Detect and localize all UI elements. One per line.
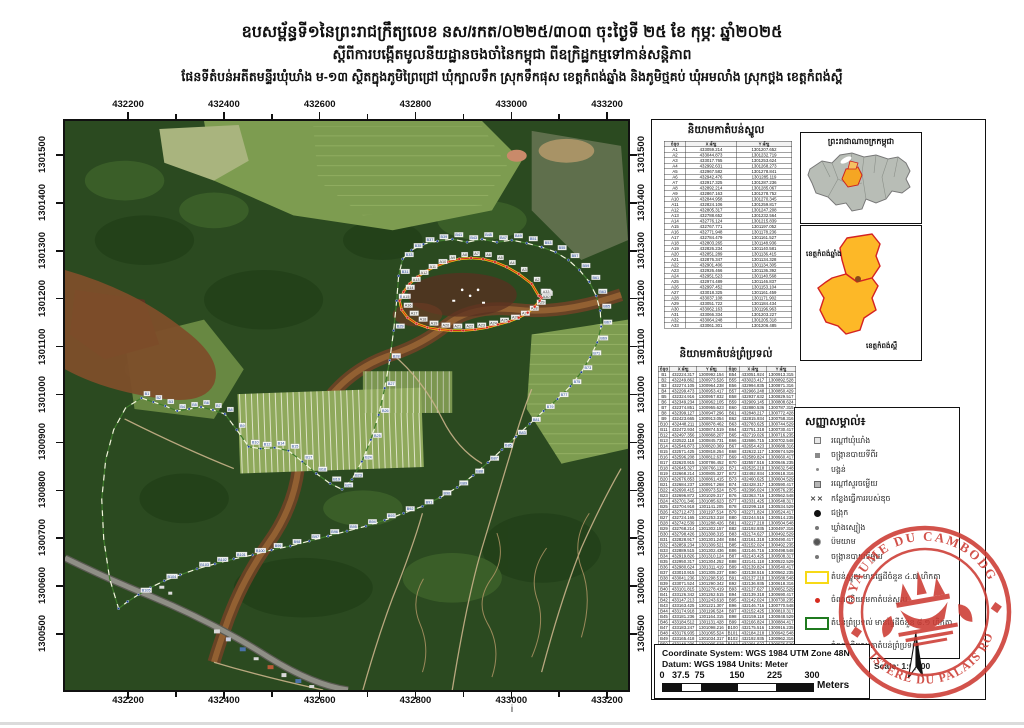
scalebar-tick-label: 225 <box>763 670 787 680</box>
table-cell: 1300973.524 <box>697 487 726 493</box>
core-point <box>538 299 541 302</box>
tick-mark <box>630 202 637 204</box>
point-label: B41 <box>455 233 462 237</box>
table-row: A33433061.3011301206.485 <box>664 323 792 329</box>
legend-item-label: ជង្រុក <box>831 507 848 519</box>
datum-units-text: Datum: WGS 1984 Units: Meter <box>662 659 788 669</box>
table-cell: B22 <box>658 487 669 493</box>
tick-mark <box>463 114 465 119</box>
table-cell: 432166.824 <box>739 619 766 625</box>
table-cell: 1300730.235 <box>766 597 795 603</box>
tick-mark <box>319 112 321 119</box>
table-cell: 432152.425 <box>739 608 766 614</box>
boundary-point <box>596 341 598 343</box>
boundary-point <box>214 563 216 565</box>
core-coordinates-table: ចំនុចX អ័ក្សY អ័ក្ស A1433059.2141301207.… <box>664 141 792 329</box>
table-cell: 432152.024 <box>739 542 766 548</box>
table-cell: 1300861.415 <box>697 476 726 482</box>
table-cell: 432448.211 <box>670 421 697 427</box>
point-label: B100 <box>256 549 265 553</box>
boundary-point <box>164 405 166 407</box>
core-point <box>517 273 520 276</box>
table-cell: 433126.342 <box>670 592 697 598</box>
core-point <box>426 326 429 329</box>
legend-item: ឃ្លាំងស្បៀង <box>803 521 865 534</box>
boundary-point <box>554 251 556 253</box>
table-cell: 433174.918 <box>670 608 697 614</box>
table-cell: 1301298.516 <box>697 575 726 581</box>
bare-soil-topright <box>539 139 595 163</box>
table-cell: 432686.715 <box>739 438 766 444</box>
tick-mark <box>558 114 560 119</box>
table-cell: 433165.418 <box>670 636 697 642</box>
table-cell: 1300973.526 <box>697 377 726 383</box>
boundary-point <box>481 238 483 240</box>
table-cell: 1301308.315 <box>697 531 726 537</box>
core-point <box>462 329 465 332</box>
table-cell: 1300818.254 <box>697 449 726 455</box>
table-cell: 1301311.419 <box>697 564 726 570</box>
core-point <box>438 328 441 331</box>
point-label: A17 <box>411 312 418 316</box>
table-cell: 1300913.054 <box>697 416 726 422</box>
table-cell: 432645.327 <box>670 465 697 471</box>
point-label: A11 <box>430 265 436 269</box>
table-cell: 1300770.548 <box>766 603 795 609</box>
point-label: B2 <box>157 396 162 400</box>
boundary-point <box>346 530 348 532</box>
table-cell: B12 <box>658 432 669 438</box>
point-label: A24 <box>490 322 497 326</box>
table-cell: 1301197.514 <box>697 509 726 515</box>
boundary-point <box>248 446 250 448</box>
point-label: A22 <box>466 325 473 329</box>
table-cell: 1301302.436 <box>697 548 726 554</box>
point-label: B83 <box>519 431 526 435</box>
legend-item-label: រណ្តៅសួរចម្លើយ <box>831 478 878 490</box>
core-point <box>470 257 473 260</box>
point-label: B75 <box>574 380 581 384</box>
table-cell: 1300588.548 <box>766 575 795 581</box>
table-cell: 1300716.235 <box>766 432 795 438</box>
table-cell: B34 <box>658 553 669 559</box>
tick-mark <box>175 692 177 697</box>
boundary-point <box>595 295 597 297</box>
legend-item-label: ចង្ក្រានបាយទីមួយ <box>831 551 883 563</box>
table-cell: 1301301.248 <box>697 537 726 543</box>
table-cell: 432909.145 <box>739 399 766 405</box>
table-cell: 432596.208 <box>670 454 697 460</box>
legend-item-label: ចំណុចនិយាមកាតំបន់ស្នូល <box>831 594 907 606</box>
scalebar <box>662 683 814 692</box>
core-point <box>494 261 497 264</box>
table-cell: B36 <box>658 564 669 570</box>
table-cell: 432137.627 <box>739 586 766 592</box>
table-cell: 1301029.317 <box>697 493 726 499</box>
table-cell: B33 <box>658 548 669 554</box>
boundary-point <box>487 461 489 463</box>
table-cell: B20 <box>658 476 669 482</box>
boundary-point <box>341 488 343 490</box>
table-cell: 432192.935 <box>739 526 766 532</box>
boundary-point <box>117 607 119 609</box>
boundary-point <box>140 397 142 399</box>
table-cell: 432684.237 <box>670 482 697 488</box>
legend-item-label: ចង្ក្រានបាយទីពីរ <box>831 449 878 461</box>
table-cell: 432324.916 <box>670 394 697 400</box>
table-cell: 1300492.529 <box>766 531 795 537</box>
kampong-speu-shape <box>818 274 878 334</box>
legend-item-label: រណ្តៅឃុំឃាំង <box>831 435 870 447</box>
legend-item-label: ឃ្លាំងស្បៀង <box>831 522 865 534</box>
table-cell: B18 <box>658 465 669 471</box>
table-cell: 432937.632 <box>739 394 766 400</box>
table-cell: B25 <box>658 504 669 510</box>
table-cell: 433051.924 <box>739 372 766 378</box>
dot-large-icon <box>814 510 821 517</box>
table-cell: 432244.516 <box>739 515 766 521</box>
table-cell: 1300992.154 <box>697 372 726 378</box>
table-cell: 433041.236 <box>670 575 697 581</box>
table-cell: 432798.426 <box>670 531 697 537</box>
tick-mark <box>630 250 637 252</box>
point-label: B9 <box>240 424 245 428</box>
boundary-point <box>236 429 238 431</box>
table-cell: B39 <box>658 581 669 587</box>
point-label: B87 <box>491 457 498 461</box>
table-cell: 1300576.235 <box>766 487 795 493</box>
boundary-point <box>567 259 569 261</box>
point-label: B77 <box>561 393 568 397</box>
x-tick-label-top: 432600 <box>290 99 350 110</box>
core-point <box>517 316 520 319</box>
table-cell: 432696.872 <box>670 493 697 499</box>
locator-cambodia-box: ព្រះរាជាណាចក្រកម្ពុជា <box>800 132 922 224</box>
boundary-point <box>436 240 438 242</box>
point-label: B92 <box>407 507 414 511</box>
tick-mark <box>511 112 513 119</box>
point-label: B15 <box>292 445 299 449</box>
table-cell: 432175.516 <box>739 625 766 631</box>
table-cell: B40 <box>658 586 669 592</box>
table-cell: 1300878.462 <box>697 421 726 427</box>
table-cell: 432472.934 <box>670 427 697 433</box>
dot-small-icon <box>816 468 819 471</box>
boundary-point <box>179 574 181 576</box>
table-cell: 1300562.548 <box>766 493 795 499</box>
table-cell: 433183.247 <box>670 625 697 631</box>
table-cell: 1300829.517 <box>766 394 795 400</box>
table-cell: 1301310.124 <box>697 553 726 559</box>
tick-mark <box>630 394 637 396</box>
tick-mark <box>630 537 637 539</box>
legend-item-label: ប៉មយាម <box>831 536 856 548</box>
boundary-point <box>370 439 372 441</box>
tick-mark <box>56 585 63 587</box>
table-cell: 1300562.235 <box>766 570 795 576</box>
point-label: B14 <box>278 442 285 446</box>
core-point <box>400 308 403 311</box>
boundary-point <box>365 525 367 527</box>
scalebar-segment <box>682 684 701 691</box>
boundary-point <box>212 409 214 411</box>
point-label: B81 <box>533 418 540 422</box>
table-cell: 433184.512 <box>670 619 697 625</box>
point-label: B91 <box>426 500 433 504</box>
tick-mark <box>56 298 63 300</box>
boundary-point <box>515 436 517 438</box>
table-cell: 432363.716 <box>739 493 766 499</box>
table-cell: 433176.935 <box>670 630 697 636</box>
point-label: B63 <box>599 290 606 294</box>
table-cell: 432690.415 <box>670 487 697 493</box>
provinces-locator-map: ខេត្តកំពង់ឆ្នាំង ខេត្តកំពង់ស្ពឺ <box>801 226 921 360</box>
point-label: B7 <box>216 404 221 408</box>
boundary-point <box>472 474 474 476</box>
x-tick-label-top: 432200 <box>98 99 158 110</box>
legend-item: រណ្តៅសួរចម្លើយ <box>803 478 878 491</box>
core-point <box>415 322 418 325</box>
x-tick-label-top: 432400 <box>194 99 254 110</box>
tick-mark <box>367 692 369 697</box>
table-cell: B102 <box>726 636 739 642</box>
table-cell: 1300874.519 <box>697 427 726 433</box>
boundary-point <box>600 325 602 327</box>
table-cell: 432497.356 <box>670 432 697 438</box>
boundary-point <box>327 535 329 537</box>
table-cell: 1300646.235 <box>766 460 795 466</box>
table-cell: B49 <box>658 636 669 642</box>
point-label: B97 <box>312 535 319 539</box>
table-cell: B44 <box>658 608 669 614</box>
table-cell: 1300884.417 <box>766 619 795 625</box>
table-cell: 1300964.238 <box>697 383 726 389</box>
table-cell: 1300916.235 <box>766 625 795 631</box>
core-point <box>497 323 500 326</box>
table-cell: B43 <box>658 603 669 609</box>
x-tick-label-top: 433200 <box>577 99 637 110</box>
table-cell: 1301305.237 <box>697 570 726 576</box>
point-label: B26 <box>382 409 389 413</box>
table-cell: 1300957.832 <box>697 394 726 400</box>
table-cell: 432146.716 <box>739 603 766 609</box>
table-cell: B37 <box>658 570 669 576</box>
tick-mark <box>56 490 63 492</box>
point-label: A12 <box>421 271 428 275</box>
table-cell: B45 <box>658 614 669 620</box>
point-label: B33 <box>406 253 413 257</box>
point-label: A23 <box>478 324 485 328</box>
table-cell: B46 <box>658 619 669 625</box>
table-cell: 1300618.316 <box>766 471 795 477</box>
table-cell: 432950.317 <box>670 559 697 565</box>
boundary-point <box>421 505 423 507</box>
table-cell: 1301278.419 <box>697 586 726 592</box>
boundary-point <box>580 371 582 373</box>
x-mark-icon: ✕✕ <box>810 495 824 503</box>
table-cell: 432423.665 <box>670 416 697 422</box>
legend-box: សញ្ញាសម្គាល់៖ រណ្តៅឃុំឃាំងចង្ក្រានបាយទីព… <box>794 407 960 659</box>
table-cell: 432768.214 <box>670 526 697 532</box>
table-cell: 1301196.524 <box>697 608 726 614</box>
point-label: B43 <box>470 236 477 240</box>
scanned-map-sheet: ឧបសម្ព័ន្ធទី១នៃព្រះរាជក្រឹត្យលេខ នស/រកត/… <box>0 0 1024 728</box>
core-point <box>450 329 453 332</box>
point-label: A33 <box>543 290 550 294</box>
legend-item: ប៉មយាម <box>803 536 856 549</box>
boundary-point <box>451 238 453 240</box>
table-cell: 1300766.118 <box>697 465 726 471</box>
table-cell: 432719.026 <box>739 432 766 438</box>
point-label: A7 <box>474 252 479 256</box>
boundary-point <box>270 549 272 551</box>
table-cell: 433163.425 <box>670 603 697 609</box>
boundary-point <box>289 545 291 547</box>
table-cell: 432546.873 <box>670 443 697 449</box>
legend-item-label: បង្គន់ <box>831 464 846 476</box>
boundary-point <box>401 258 403 260</box>
core-point <box>530 282 533 285</box>
table-cell: 432137.218 <box>739 575 766 581</box>
table-cell: 432192.935 <box>739 636 766 642</box>
table-cell: 1300786.452 <box>697 460 726 466</box>
table-cell: 433181.236 <box>670 614 697 620</box>
table-cell: 1301309.521 <box>697 542 726 548</box>
table-cell: 432522.118 <box>670 438 697 444</box>
table-cell: 432525.218 <box>739 465 766 471</box>
point-label: B5 <box>192 403 197 407</box>
point-label: B24 <box>365 456 372 460</box>
table-cell: 1300953.417 <box>697 388 726 394</box>
table-cell: 1300744.529 <box>766 421 795 427</box>
boundary-point <box>259 448 261 450</box>
point-label: B69 <box>600 336 607 340</box>
map-title-line3: ផែនទីតំបន់អតីតមន្ទីរឃុំឃាំង ម-១៣ ស្ថិតក្… <box>40 68 984 86</box>
table-cell: 432138.516 <box>739 570 766 576</box>
point-label: A19 <box>431 322 438 326</box>
table-cell: 1301304.252 <box>697 559 726 565</box>
table-cell: 1300808.624 <box>766 399 795 405</box>
table-cell: 1300812.637 <box>697 454 726 460</box>
table-cell: B21 <box>658 482 669 488</box>
tick-mark <box>223 112 225 119</box>
tick-mark <box>56 394 63 396</box>
legend-item: ជង្រុក <box>803 507 848 520</box>
boundary-point <box>251 554 253 556</box>
point-label: A16 <box>405 304 412 308</box>
tick-mark <box>606 112 608 119</box>
table-cell: 1300758.316 <box>766 416 795 422</box>
table-cell: 1300962.105 <box>697 399 726 405</box>
point-label: B47 <box>500 236 507 240</box>
kampong-speu-label: ខេត្តកំពង់ស្ពឺ <box>866 341 897 350</box>
point-label: B102 <box>218 558 227 562</box>
table-cell: 432859.234 <box>670 542 697 548</box>
table-cell: 432712.473 <box>670 509 697 515</box>
boundary-point <box>301 460 303 462</box>
point-label: A2 <box>535 278 540 282</box>
table-cell: 433101.815 <box>670 586 697 592</box>
boundary-point <box>511 239 513 241</box>
table-cell: B38 <box>658 575 669 581</box>
table-cell: 432224.317 <box>670 372 697 378</box>
rect-green-icon <box>805 617 829 630</box>
table-cell: 432701.346 <box>670 498 697 504</box>
boundary-point <box>126 600 128 602</box>
table-cell: 1300524.417 <box>766 509 795 515</box>
y-tick-label-left: 1300500 <box>36 605 49 663</box>
table-cell: B16 <box>658 454 669 460</box>
table-cell: 1300787.315 <box>766 405 795 411</box>
table-cell: 432815.934 <box>739 416 766 422</box>
boundary-point <box>329 482 331 484</box>
table-cell: B28 <box>658 520 669 526</box>
boundary-point <box>456 486 458 488</box>
table-cell: 432589.824 <box>739 454 766 460</box>
core-point <box>505 266 508 269</box>
point-label: B10 <box>252 441 259 445</box>
boundary-point <box>501 448 503 450</box>
table-cell: 432174.627 <box>739 531 766 537</box>
table-cell: B30 <box>658 531 669 537</box>
table-cell: 432142.024 <box>739 597 766 603</box>
legend-item: តំបន់ព្រំប្រទល់ មានផ្ទៃដីចំនួន ៨.១ ហិកតា <box>803 614 952 632</box>
core-point <box>474 328 477 331</box>
point-label: B31 <box>402 270 409 274</box>
table-cell: 1301221.307 <box>697 603 726 609</box>
table-cell: B23 <box>658 493 669 499</box>
core-point <box>526 311 529 314</box>
tick-mark <box>558 692 560 697</box>
table-cell: 432146.716 <box>739 548 766 554</box>
table-cell: B29 <box>658 526 669 532</box>
boundary-point <box>233 558 235 560</box>
boundary-point <box>224 413 226 415</box>
core-point <box>482 258 485 261</box>
point-label: B104 <box>167 575 176 579</box>
table-cell: 1300730.417 <box>766 427 795 433</box>
table-cell: 432136.935 <box>739 581 766 587</box>
point-label: B61 <box>592 276 599 280</box>
scalebar-tick-label: 150 <box>725 670 749 680</box>
table-cell: B13 <box>658 438 669 444</box>
table-cell: B24 <box>658 498 669 504</box>
table-cell: 432704.918 <box>670 504 697 510</box>
scalebar-segment <box>663 684 682 691</box>
table-cell: B41 <box>658 592 669 598</box>
table-cell: 432889.515 <box>670 548 697 554</box>
table-cell: 1300652.529 <box>766 586 795 592</box>
tick-mark <box>56 202 63 204</box>
point-label: B105 <box>142 589 151 593</box>
table-cell: B31 <box>658 537 669 543</box>
table-cell: 432299.118 <box>739 504 766 510</box>
dot-ring-icon <box>813 538 821 546</box>
table-cell: B42 <box>658 597 669 603</box>
boundary-point <box>397 275 399 277</box>
table-cell: 1300632.548 <box>766 465 795 471</box>
legend-item: ចង្ក្រានបាយទីពីរ <box>803 449 878 462</box>
page-number: i <box>482 704 542 715</box>
point-label: B45 <box>485 233 492 237</box>
point-label: B37 <box>427 238 434 242</box>
coordinate-system-text: Coordinate System: WGS 1984 UTM Zone 48N <box>662 648 850 658</box>
table-cell: 432428.317 <box>739 482 766 488</box>
boundary-point <box>351 478 353 480</box>
boundary-point <box>540 246 542 248</box>
point-label: B53 <box>545 241 552 245</box>
point-label: A14 <box>407 286 414 290</box>
